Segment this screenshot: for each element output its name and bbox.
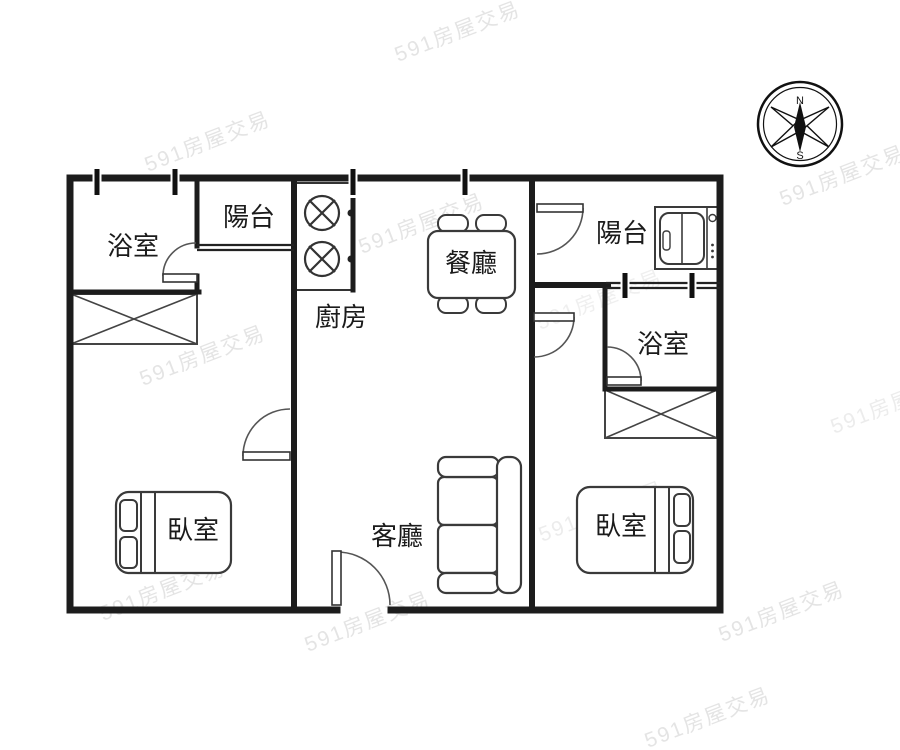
watermark-text: 591房屋交易 <box>302 588 434 657</box>
floor-plan: 591房屋交易 591房屋交易 591房屋交易 591房屋交易 591房屋交易 … <box>0 0 900 750</box>
compass-south-label: S <box>796 150 803 162</box>
door-swing-icon <box>243 409 290 460</box>
window-tick-icon <box>349 166 358 198</box>
door-swing-icon <box>607 347 641 385</box>
room-label-dining-room: 餐廳 <box>445 248 497 278</box>
sofa-icon <box>438 457 521 593</box>
watermark-text: 591房屋交易 <box>142 108 274 177</box>
window-tick-icon <box>461 166 470 198</box>
door-swing-icon <box>332 551 390 605</box>
compass-rose-icon: N S <box>758 82 842 166</box>
room-label-bathroom-right: 浴室 <box>637 329 689 359</box>
window-tick-icon <box>93 166 102 198</box>
crossed-cabinet-icon <box>71 294 197 344</box>
crossed-cabinet-icon <box>605 390 717 438</box>
door-swing-icon <box>163 243 197 282</box>
door-swing-icon <box>537 204 583 254</box>
floor-plan-drawing: 591房屋交易 591房屋交易 591房屋交易 591房屋交易 591房屋交易 … <box>0 0 900 750</box>
room-label-bedroom-right: 臥室 <box>595 511 647 541</box>
room-label-bedroom-left: 臥室 <box>167 515 219 545</box>
watermark-text: 591房屋交易 <box>642 684 774 750</box>
watermark-text: 591房屋交易 <box>777 142 900 211</box>
room-label-living-room: 客廳 <box>371 521 423 551</box>
window-tick-icon <box>171 166 180 198</box>
room-label-balcony-right: 陽台 <box>596 218 648 248</box>
watermark-text: 591房屋交易 <box>828 370 900 439</box>
watermark-text: 591房屋交易 <box>137 322 269 391</box>
washing-machine-icon <box>655 207 718 269</box>
door-swing-icon <box>534 313 574 357</box>
watermark-text: 591房屋交易 <box>392 0 524 67</box>
compass-north-label: N <box>796 95 804 107</box>
room-label-balcony-left: 陽台 <box>223 202 275 232</box>
window-tick-icon <box>688 270 697 301</box>
room-label-bathroom-left: 浴室 <box>107 231 159 261</box>
stove-burners-icon <box>295 183 355 290</box>
window-tick-icon <box>621 270 630 301</box>
watermark-text: 591房屋交易 <box>534 266 666 335</box>
room-label-kitchen: 廚房 <box>315 302 367 332</box>
watermark-text: 591房屋交易 <box>716 578 848 647</box>
